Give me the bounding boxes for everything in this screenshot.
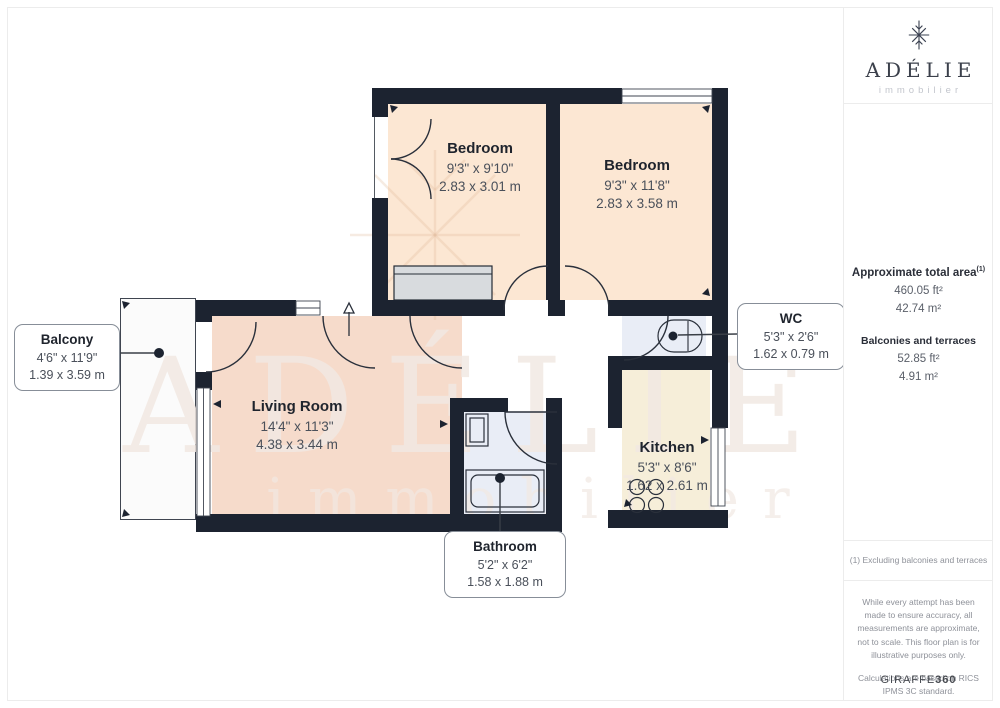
room-dim-imperial: 5'2" x 6'2" (449, 557, 561, 574)
room-dim-metric: 1.62 x 0.79 m (742, 346, 840, 363)
room-name: Living Room (252, 397, 343, 418)
room-name: Bedroom (439, 139, 521, 160)
brand-name: ADÉLIE (844, 58, 993, 82)
room-dim-metric: 2.83 x 3.58 m (596, 195, 678, 214)
room-name: Bathroom (449, 538, 561, 557)
bedroom-1-label: Bedroom 9'3" x 9'10" 2.83 x 3.01 m (439, 139, 521, 197)
balconies-sqft: 52.85 ft² (844, 353, 993, 365)
giraffe360-number: 360 (935, 674, 956, 686)
room-dim-imperial: 5'3" x 8'6" (626, 459, 708, 478)
disclaimer-text: While every attempt has been made to ens… (856, 596, 981, 662)
balconies-label: Balconies and terraces (844, 335, 993, 347)
total-area-label: Approximate total area(1) (844, 266, 993, 279)
brand-logo-block: ADÉLIE immobilier (844, 8, 993, 104)
floorplan-page: ADÉLIE immobilier (0, 0, 1000, 708)
giraffe360-logo: GIRAFFE360 (844, 674, 993, 686)
room-dim-imperial: 14'4" x 11'3" (252, 418, 343, 437)
living-room-balcony-window (197, 388, 210, 516)
kitchen-label: Kitchen 5'3" x 8'6" 1.62 x 2.61 m (626, 438, 708, 496)
wardrobe (394, 266, 492, 300)
wc-leader (678, 334, 737, 335)
room-dim-metric: 4.38 x 3.44 m (252, 436, 343, 455)
room-name: Bedroom (596, 156, 678, 177)
room-name: Balcony (19, 331, 115, 350)
room-name: Kitchen (626, 438, 708, 459)
total-area-sqm: 42.74 m² (844, 303, 993, 315)
room-dim-metric: 1.62 x 2.61 m (626, 477, 708, 496)
giraffe360-name: GIRAFFE (880, 674, 935, 686)
living-room-top-window (296, 301, 320, 315)
total-area-label-text: Approximate total area (852, 267, 977, 279)
balcony-callout: Balcony 4'6" x 11'9" 1.39 x 3.59 m (14, 324, 120, 391)
room-dim-metric: 2.83 x 3.01 m (439, 178, 521, 197)
disclaimer-section: While every attempt has been made to ens… (844, 580, 993, 700)
wc-callout: WC 5'3" x 2'6" 1.62 x 0.79 m (737, 303, 845, 370)
room-dim-imperial: 9'3" x 9'10" (439, 160, 521, 179)
kitchen-window (711, 428, 725, 506)
bedroom-2-label: Bedroom 9'3" x 11'8" 2.83 x 3.58 m (596, 156, 678, 214)
room-dim-imperial: 5'3" x 2'6" (742, 329, 840, 346)
info-sidebar: ADÉLIE immobilier Approximate total area… (843, 8, 993, 700)
area-summary-section: Approximate total area(1) 460.05 ft² 42.… (844, 103, 993, 541)
footnote-text: (1) Excluding balconies and terraces (850, 555, 988, 565)
footnote-section: (1) Excluding balconies and terraces (844, 540, 993, 581)
snowflake-icon (902, 18, 936, 52)
bathroom-callout: Bathroom 5'2" x 6'2" 1.58 x 1.88 m (444, 531, 566, 598)
bedroom-2-window (622, 89, 712, 103)
total-area-sqft: 460.05 ft² (844, 285, 993, 297)
living-room-label: Living Room 14'4" x 11'3" 4.38 x 3.44 m (252, 397, 343, 455)
room-dim-imperial: 9'3" x 11'8" (596, 177, 678, 196)
room-dim-metric: 1.39 x 3.59 m (19, 367, 115, 384)
floorplan-canvas: ADÉLIE immobilier (0, 0, 843, 708)
total-area-footnote-marker: (1) (977, 266, 986, 273)
brand-tagline: immobilier (844, 85, 993, 96)
room-dim-imperial: 4'6" x 11'9" (19, 350, 115, 367)
room-name: WC (742, 310, 840, 329)
balconies-sqm: 4.91 m² (844, 371, 993, 383)
room-dim-metric: 1.58 x 1.88 m (449, 574, 561, 591)
